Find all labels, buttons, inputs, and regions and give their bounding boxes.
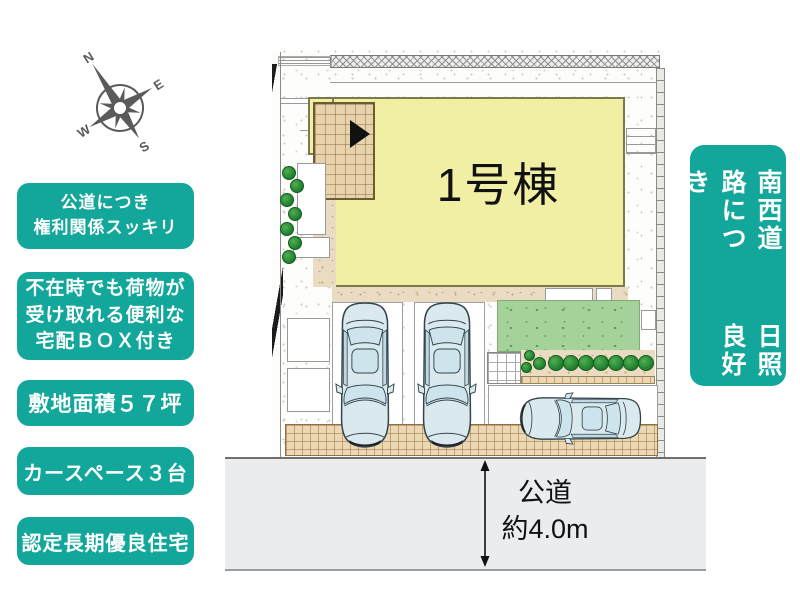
badge-line: 宅配ＢＯＸ付き bbox=[35, 329, 175, 356]
car-top-view-3 bbox=[518, 392, 643, 445]
compass-s-label: S bbox=[136, 138, 152, 155]
car-top-view-1 bbox=[335, 300, 395, 450]
bush-icon bbox=[593, 355, 609, 371]
feature-badge-certified-housing: 認定長期優良住宅 bbox=[17, 517, 194, 565]
badge-line: 敷地面積５７坪 bbox=[29, 388, 183, 418]
bush-icon bbox=[623, 355, 639, 371]
badge-line: 公道につき bbox=[61, 191, 151, 216]
property-flyer: N E W S 公道につき 権利関係スッキリ 不在時でも荷物が 受け取れる便利な… bbox=[0, 0, 800, 600]
bush-icon bbox=[290, 179, 304, 193]
bush-icon bbox=[608, 355, 624, 371]
compass-w-label: W bbox=[75, 121, 94, 141]
bush-icon bbox=[282, 166, 296, 180]
badge-line: 日照良好 bbox=[690, 323, 786, 386]
road-width-value: 約4.0m bbox=[465, 511, 625, 547]
badge-line: 認定長期優良住宅 bbox=[22, 527, 190, 556]
building-label: 1号棟 bbox=[372, 152, 625, 212]
bush-icon bbox=[280, 222, 294, 236]
compass-e-label: E bbox=[151, 76, 167, 93]
bush-icon bbox=[638, 355, 654, 371]
badge-line: 受け取れる便利な bbox=[25, 303, 185, 330]
badge-line: 南西道路につき bbox=[696, 169, 786, 279]
bush-icon bbox=[288, 236, 302, 250]
badge-line: カースペース３台 bbox=[23, 457, 188, 486]
bush-icon bbox=[533, 357, 546, 370]
bush-icon bbox=[521, 362, 532, 373]
bush-icon bbox=[578, 355, 594, 371]
feature-badge-land-area: 敷地面積５７坪 bbox=[17, 380, 194, 426]
boundary-line-top bbox=[330, 82, 656, 83]
neighbor-wall-hatch bbox=[330, 55, 660, 68]
utility-area bbox=[297, 163, 326, 235]
site-plan: 1号棟 bbox=[272, 50, 665, 457]
bush-icon bbox=[548, 355, 564, 371]
car-top-view-2 bbox=[417, 300, 477, 450]
feature-badge-delivery-box: 不在時でも荷物が 受け取れる便利な 宅配ＢＯＸ付き bbox=[17, 272, 194, 360]
compass-n-label: N bbox=[81, 49, 97, 67]
feature-badge-road-rights: 公道につき 権利関係スッキリ bbox=[17, 183, 194, 249]
road-label: 公道 約4.0m bbox=[465, 475, 625, 548]
boundary-dashes-left bbox=[272, 64, 283, 457]
badge-line: 不在時でも荷物が bbox=[25, 276, 185, 303]
bush-icon bbox=[563, 355, 579, 371]
bush-icon bbox=[280, 193, 294, 207]
boundary-line-left bbox=[280, 52, 281, 457]
bush-icon bbox=[288, 207, 302, 221]
feature-badge-sunlight: 南西道路につき 日照良好 bbox=[690, 145, 786, 386]
planting-strip-edge bbox=[521, 376, 655, 384]
utility-area bbox=[287, 368, 330, 412]
tiled-pad bbox=[487, 352, 521, 384]
utility-area bbox=[641, 310, 656, 330]
badge-line: 権利関係スッキリ bbox=[34, 216, 178, 241]
road-name: 公道 bbox=[465, 475, 625, 511]
exterior-steps bbox=[626, 128, 656, 154]
utility-area bbox=[287, 318, 330, 362]
retaining-wall-lines bbox=[278, 56, 332, 66]
entrance-arrow-icon bbox=[350, 120, 370, 148]
compass-icon: N E W S bbox=[58, 42, 182, 172]
lawn-area bbox=[497, 300, 640, 352]
feature-badge-car-space: カースペース３台 bbox=[17, 447, 194, 495]
road-area: 公道 約4.0m bbox=[225, 457, 706, 571]
bush-icon bbox=[282, 250, 296, 264]
